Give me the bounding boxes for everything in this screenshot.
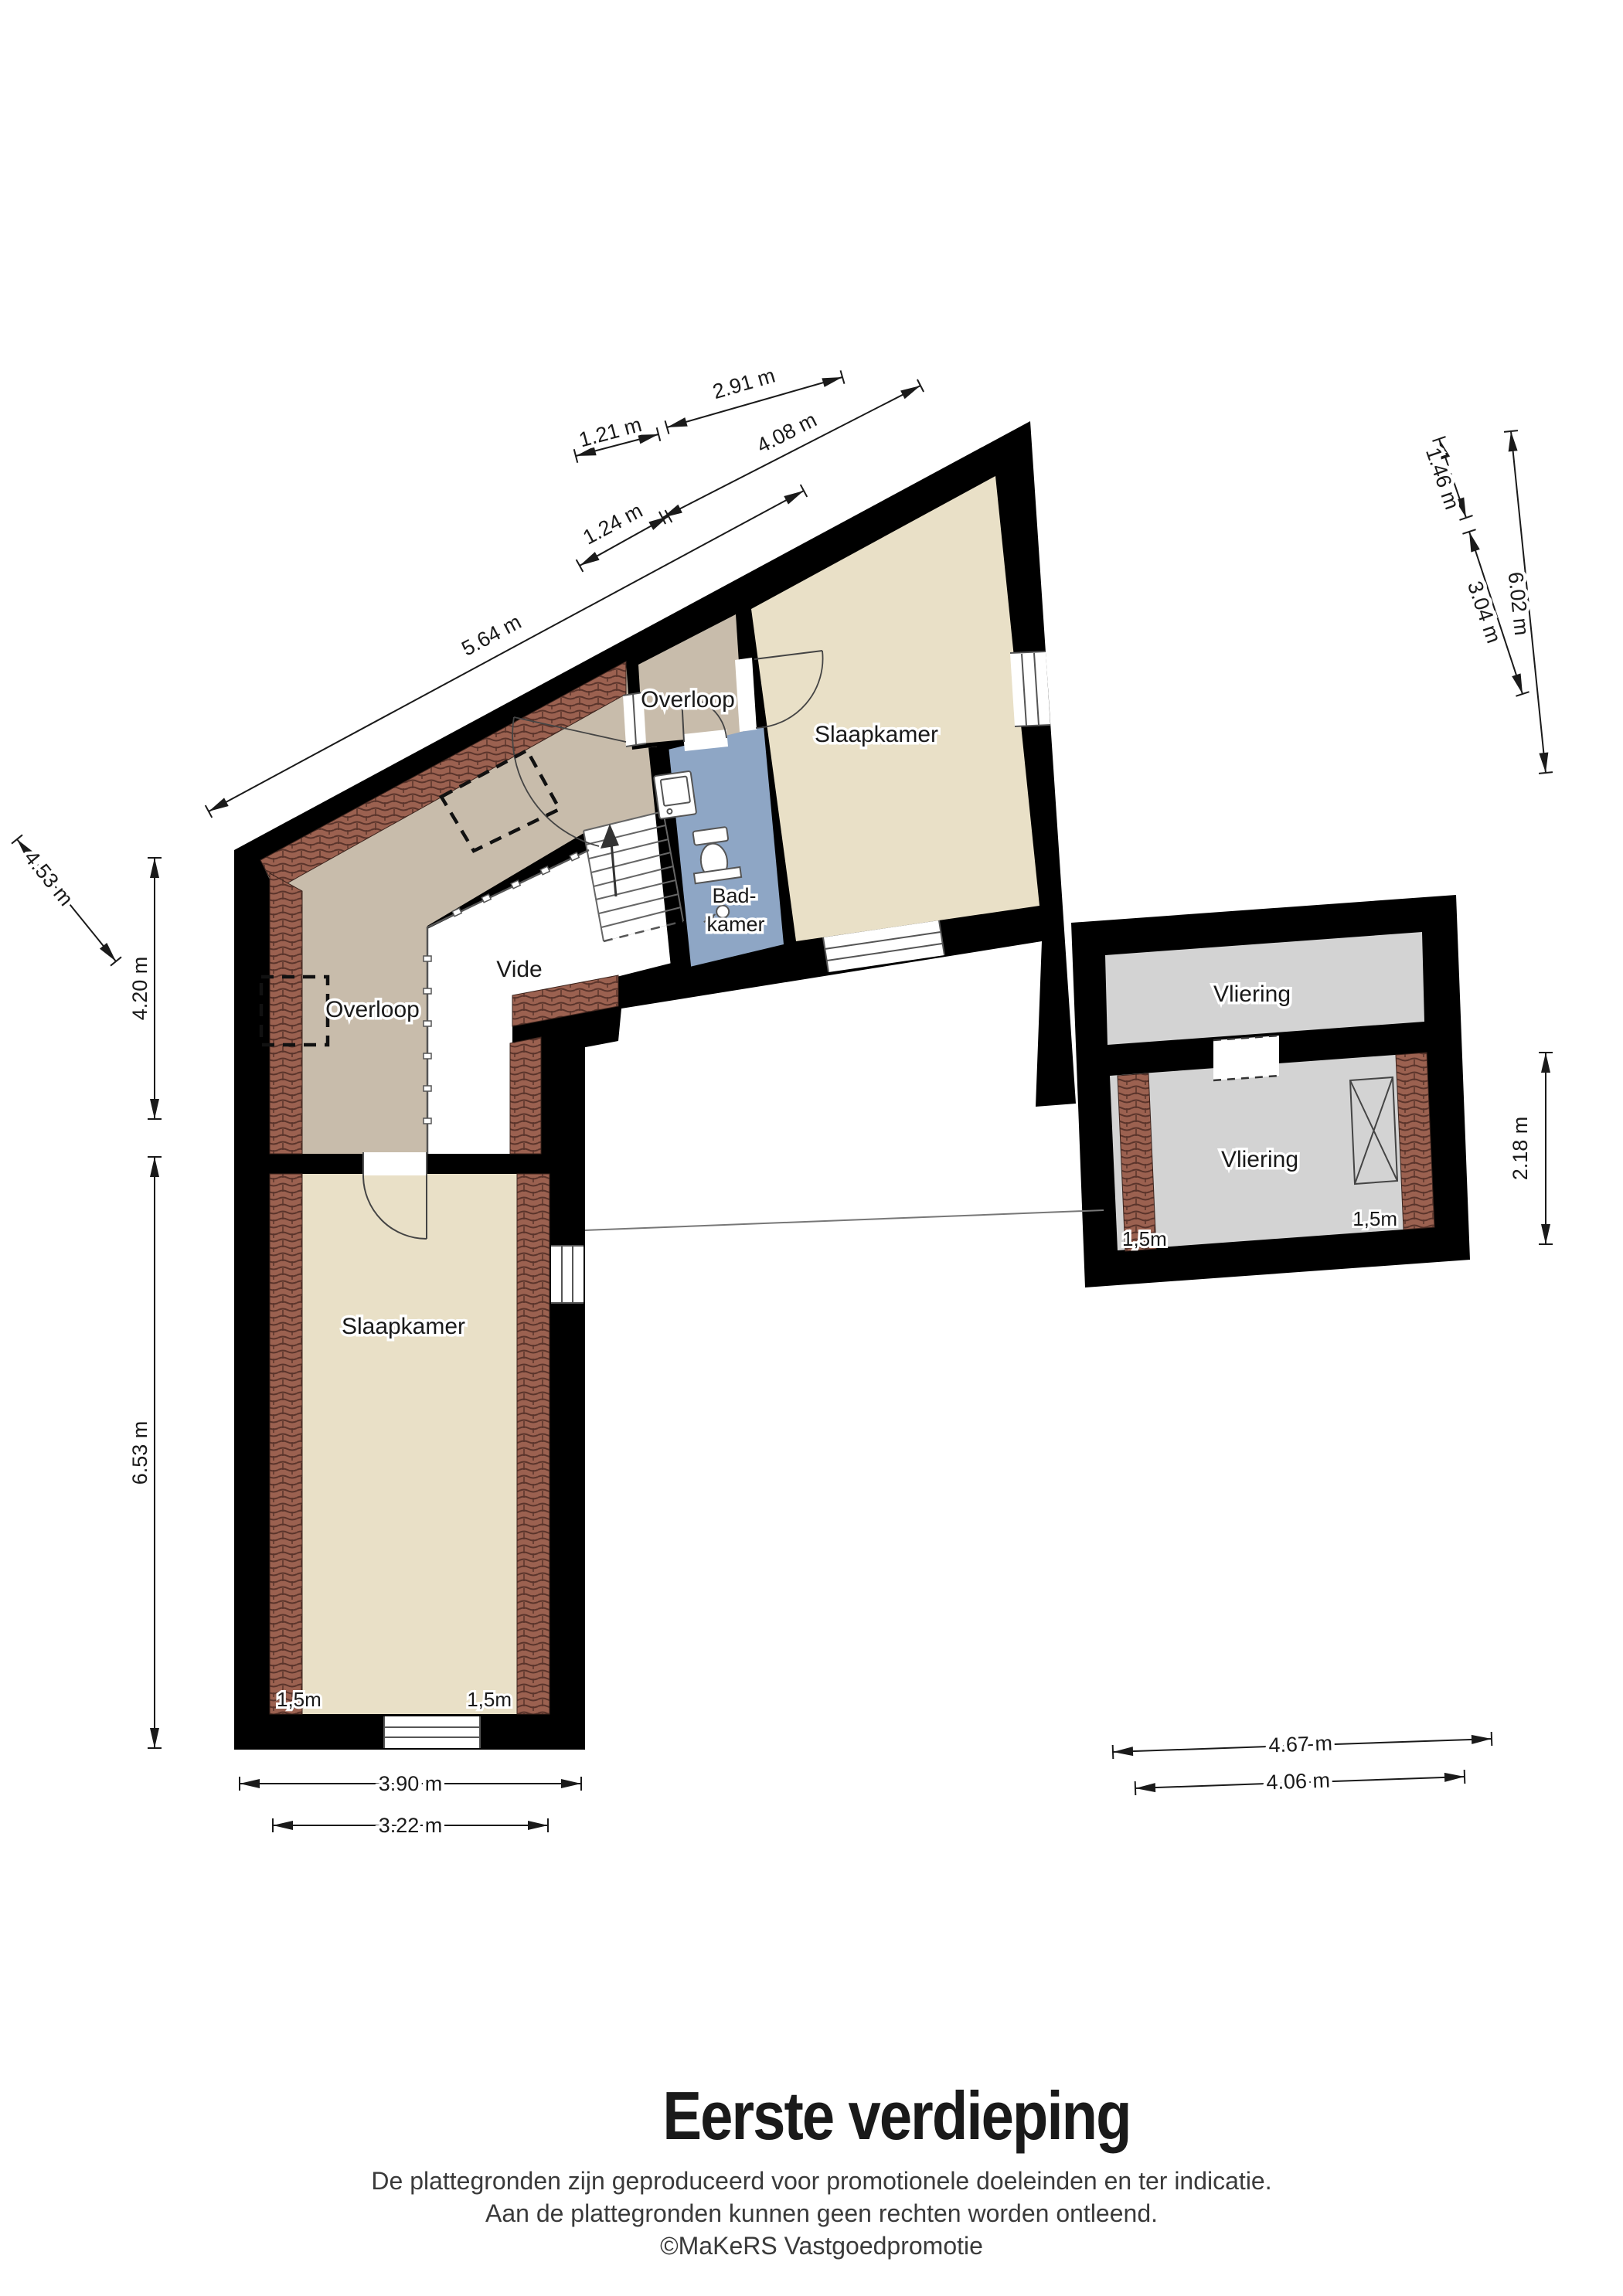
footer-disclaimer-1: De plattegronden zijn geproduceerd voor … (371, 2167, 1271, 2195)
dim-top-1_21: 1.21 m (577, 413, 644, 451)
wall-lower-rect-finger (541, 1028, 585, 1157)
footer-disclaimer-2: Aan de plattegronden kunnen geen rechten… (485, 2199, 1158, 2227)
dim-top-4_08: 4.08 m (753, 408, 820, 457)
room-slaapkamer-bottom (270, 1174, 550, 1714)
label-badkamer-2: kamer (706, 913, 764, 936)
footer: Eerste verdieping De plattegronden zijn … (371, 2079, 1271, 2260)
marker-slaapkamer-left: 1,5m (277, 1688, 322, 1711)
dim-bottom-4_67: 4.67 m (1268, 1732, 1333, 1757)
dim-right-1_46: 1.46 m (1421, 444, 1464, 512)
passage-vliering (1213, 1036, 1279, 1080)
dim-annex-2_18: 2.18 m (1509, 1117, 1532, 1181)
label-vliering-top: Vliering (1213, 981, 1291, 1007)
dim-top-5_64: 5.64 m (458, 610, 525, 660)
label-slaapkamer-bottom: Slaapkamer (342, 1314, 465, 1339)
footer-credit: ©MaKeRS Vastgoedpromotie (660, 2232, 983, 2260)
dim-right-6_02: 6.02 m (1504, 570, 1533, 636)
dim-left-6_53: 6.53 m (128, 1421, 151, 1485)
dim-bottom-3_22: 3.22 m (379, 1814, 443, 1837)
brick-lower-left (270, 1174, 302, 1714)
label-overloop-small: Overloop (641, 687, 735, 713)
window-right (551, 1246, 584, 1303)
room-slaapkamer-top (751, 476, 1039, 941)
dim-top-1_24: 1.24 m (579, 498, 646, 549)
dim-bottom-4_06: 4.06 m (1266, 1769, 1331, 1794)
room-interiors (260, 476, 1434, 1714)
page-title: Eerste verdieping (662, 2079, 1130, 2154)
label-badkamer-1: Bad- (712, 884, 756, 907)
dim-left-4_53: 4.53 m (19, 846, 77, 910)
label-vide: Vide (496, 957, 543, 982)
marker-vliering-right: 1,5m (1352, 1207, 1397, 1230)
floorplan-canvas: 2.91 m 1.21 m 4.08 m 1.24 m 5.64 m 1.46 … (0, 0, 1623, 2296)
dim-top-2_91: 2.91 m (710, 364, 778, 404)
marker-slaapkamer-right: 1,5m (467, 1688, 512, 1711)
dim-right-3_04: 3.04 m (1463, 578, 1506, 646)
label-overloop-wing: Overloop (325, 997, 420, 1022)
sink-icon (654, 771, 696, 819)
dim-bottom-3_90: 3.90 m (379, 1772, 443, 1795)
brick-lower-right (517, 1174, 550, 1714)
label-slaapkamer-top: Slaapkamer (815, 722, 938, 747)
window-bottom (384, 1716, 480, 1748)
window-slaapkamer-right (1010, 651, 1050, 726)
brick-wing-left (270, 873, 302, 1154)
label-vliering-bottom: Vliering (1221, 1147, 1298, 1172)
brick-finger-left (510, 1037, 541, 1154)
roof-edge-line (585, 1210, 1104, 1230)
dim-left-4_20: 4.20 m (128, 957, 151, 1021)
marker-vliering-left: 1,5m (1122, 1227, 1167, 1250)
